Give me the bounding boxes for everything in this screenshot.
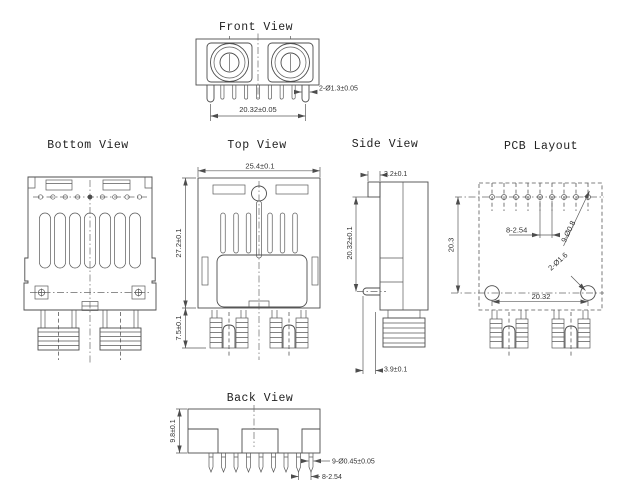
pcb-pin-pitch-dim: 8-2.54	[506, 201, 558, 238]
back-pins	[209, 453, 313, 472]
top-shank-label: 7.5±0.1	[174, 316, 183, 341]
front-pin-diameter-dim: 2-Ø1.3±0.05	[295, 86, 358, 93]
top-width-dim: 25.4±0.1	[198, 162, 320, 178]
back-pin-pitch-label: 8-2.54	[322, 474, 342, 481]
pcb-post-holes-label: 2-Ø1.6	[546, 250, 569, 272]
pcb-layout-view: PCB Layout 8-2.54 9-Ø0.8	[447, 140, 605, 357]
bottom-pin-holes	[33, 195, 147, 200]
bottom-view: Bottom View	[24, 139, 156, 364]
front-socket-right	[268, 43, 313, 82]
back-height-dim: 9.8±0.1	[170, 409, 187, 453]
side-standoff-label: 3.9±0.1	[384, 367, 407, 374]
front-view-title: Front View	[219, 21, 293, 34]
side-tab-width-label: 3.2±0.1	[384, 171, 407, 178]
bottom-body	[24, 177, 156, 364]
pcb-post-span-dim: 20.32	[492, 292, 588, 306]
back-pin-diameter-label: 9-Ø0.45±0.05	[332, 459, 375, 466]
top-width-label: 25.4±0.1	[245, 162, 274, 171]
pcb-post-holes-dim: 2-Ø1.6	[546, 250, 585, 290]
pcb-pin-holes-label: 9-Ø0.8	[559, 219, 577, 244]
side-pin-height-label: 20.32±0.1	[345, 226, 354, 259]
side-tab-width-dim: 3.2±0.1	[361, 171, 407, 181]
back-height-label: 9.8±0.1	[170, 419, 177, 442]
side-threaded-bushing	[383, 310, 425, 347]
pcb-threaded-bushings	[490, 310, 590, 357]
back-body	[188, 405, 320, 453]
connector-technical-drawing: Front View	[0, 0, 634, 503]
back-view-title: Back View	[227, 392, 294, 405]
side-standoff-dim: 3.9±0.1	[356, 296, 407, 374]
top-height-label: 27.2±0.1	[174, 228, 183, 257]
side-body	[357, 182, 428, 310]
side-view-title: Side View	[352, 138, 419, 151]
front-pin-diameter-label: 2-Ø1.3±0.05	[319, 86, 358, 93]
pcb-pin-pitch-label: 8-2.54	[506, 226, 527, 235]
back-pin-pitch-dim: 8-2.54	[292, 472, 342, 481]
front-view: Front View	[196, 21, 358, 121]
pcb-outline	[479, 183, 602, 310]
top-view-title: Top View	[227, 139, 286, 152]
pcb-pin-holes	[455, 195, 604, 200]
bottom-view-title: Bottom View	[47, 139, 128, 152]
pcb-row-gap-label: 20.3	[447, 238, 456, 253]
front-socket-left	[207, 43, 252, 82]
back-view: Back View 9.8±0.1 9-	[170, 392, 375, 481]
pcb-layout-title: PCB Layout	[504, 140, 578, 153]
drawing-sheet: Front View	[0, 0, 634, 503]
pcb-post-holes	[451, 286, 604, 301]
front-pin-span-label: 20.32±0.05	[239, 105, 276, 114]
front-pin-span-dim: 20.32±0.05	[211, 104, 306, 121]
top-shank-dim: 7.5±0.1	[174, 308, 206, 348]
top-view: Top View 25.4±0.1 27.2±0.1 7.5±0.1	[174, 139, 320, 360]
top-height-dim: 27.2±0.1	[174, 178, 196, 308]
side-pin-height-dim: 20.32±0.1	[345, 197, 368, 292]
pcb-post-span-label: 20.32	[532, 292, 551, 301]
bottom-threaded-bushings	[38, 310, 141, 360]
side-view: Side View 3.2±0.1 20.32±0.1 3.9±0.1	[345, 138, 428, 374]
pcb-row-gap-dim: 20.3	[447, 197, 459, 293]
